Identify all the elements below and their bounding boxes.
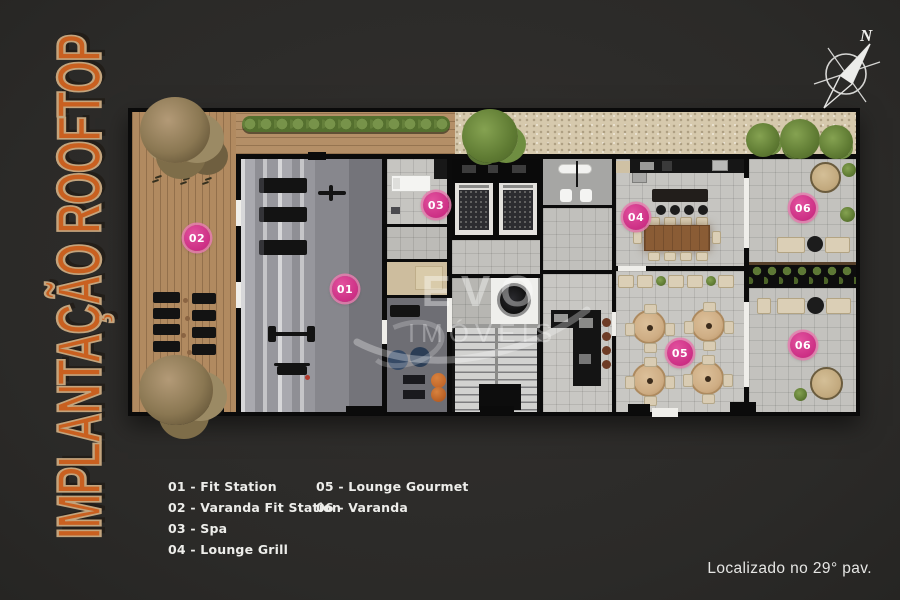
service-hall xyxy=(543,208,612,270)
toilet xyxy=(580,189,592,202)
bathroom-divider xyxy=(576,161,578,187)
exercise-mat xyxy=(403,375,425,384)
armchair xyxy=(668,275,684,288)
sun-lounger xyxy=(153,292,180,303)
treadmill xyxy=(259,207,307,222)
legend-item-lounge-grill: 04 - Lounge Grill xyxy=(168,543,316,557)
sofa xyxy=(826,298,851,314)
marker-05-lounge-gourmet: 05 xyxy=(667,340,693,366)
potted-plant xyxy=(794,388,807,401)
spa-tub xyxy=(497,283,531,317)
massage-mat xyxy=(415,266,443,290)
sun-lounger xyxy=(153,308,180,319)
elevator-cab xyxy=(455,183,493,235)
legend-item-lounge-gourmet: 05 - Lounge Gourmet xyxy=(316,480,469,494)
bar-stool xyxy=(698,205,708,215)
support-kitchen xyxy=(543,274,614,412)
sofa xyxy=(777,237,805,253)
coffee-table xyxy=(807,236,823,252)
green-roof-hedge xyxy=(242,116,450,132)
marker-label: 03 xyxy=(428,199,444,212)
dining-table xyxy=(644,225,710,251)
chair xyxy=(625,376,635,389)
round-table xyxy=(632,310,666,344)
marker-label: 06 xyxy=(795,339,811,352)
chair xyxy=(644,304,657,314)
armchair xyxy=(718,275,734,288)
chair xyxy=(644,343,657,353)
elevator-vent xyxy=(512,165,526,173)
chair xyxy=(702,394,715,404)
compass-icon: N xyxy=(806,24,894,112)
centerpiece xyxy=(647,378,653,384)
sun-lounger xyxy=(192,327,216,338)
bar-stool xyxy=(684,205,694,215)
stool xyxy=(602,346,611,355)
pouf-orange xyxy=(431,387,446,402)
round-table xyxy=(691,308,725,342)
elliptical-machine xyxy=(329,185,333,201)
grill xyxy=(662,161,672,171)
side-table xyxy=(185,316,190,321)
bush xyxy=(462,109,518,163)
elevator-car xyxy=(459,190,489,230)
sun-lounger xyxy=(192,310,216,321)
bush xyxy=(746,123,780,157)
massage-bed-pillow xyxy=(393,178,400,189)
chair xyxy=(703,302,716,312)
chair xyxy=(702,355,715,365)
dining-chair xyxy=(680,252,692,261)
elevator-vent xyxy=(462,165,476,173)
staircase xyxy=(452,328,540,412)
stool xyxy=(602,360,611,369)
spa-counter xyxy=(434,159,447,179)
stair-rail xyxy=(495,328,498,386)
chair xyxy=(684,321,694,334)
marker-02-varanda-fit-station: 02 xyxy=(184,225,210,251)
marker-04-lounge-grill: 04 xyxy=(623,204,649,230)
armchair xyxy=(618,275,634,288)
chair xyxy=(665,376,675,389)
armchair xyxy=(637,275,653,288)
marker-label: 05 xyxy=(672,347,688,360)
side-counter xyxy=(616,161,630,173)
armchair xyxy=(757,298,771,314)
side-table xyxy=(181,333,186,338)
sun-lounger xyxy=(192,344,216,355)
sofa xyxy=(777,298,805,314)
treadmill xyxy=(259,240,307,255)
bathrooms xyxy=(543,159,612,205)
centerpiece xyxy=(705,376,711,382)
chair xyxy=(683,374,693,387)
pouf-orange xyxy=(431,373,446,388)
marker-label: 06 xyxy=(795,202,811,215)
bush xyxy=(819,125,853,159)
marker-label: 02 xyxy=(189,232,205,245)
dining-chair xyxy=(648,252,660,261)
daybed xyxy=(810,367,843,400)
floor-plan: 01 02 03 04 05 06 06 xyxy=(128,108,860,416)
chair xyxy=(644,357,657,367)
kitchen-sink xyxy=(554,314,568,322)
gym-accessory xyxy=(305,375,310,380)
sun-lounger xyxy=(192,293,216,304)
elevator-door xyxy=(503,185,533,188)
daybed xyxy=(810,162,841,193)
centerpiece xyxy=(647,325,653,331)
chair xyxy=(625,323,635,336)
legend: 01 - Fit Station 02 - Varanda Fit Statio… xyxy=(168,480,469,564)
marker-06-varanda-lower: 06 xyxy=(790,332,816,358)
bar-table xyxy=(652,189,708,202)
corridor xyxy=(452,278,491,324)
grill-counter xyxy=(630,159,744,173)
coffee-table xyxy=(807,297,824,314)
sun-lounger xyxy=(153,341,180,352)
spa-stool xyxy=(391,207,400,214)
tree xyxy=(140,97,210,163)
centerpiece xyxy=(706,323,712,329)
legend-column-2: 05 - Lounge Gourmet 06 - Varanda xyxy=(316,480,469,564)
counter-sink xyxy=(640,162,654,170)
room-fit-station xyxy=(241,159,382,412)
bar-stool xyxy=(656,205,666,215)
elevator-block xyxy=(452,159,540,240)
dining-chair xyxy=(712,231,721,244)
massage-bed xyxy=(391,175,431,192)
marker-06-varanda-upper: 06 xyxy=(790,195,816,221)
legend-item-varanda-fit-station: 02 - Varanda Fit Station xyxy=(168,501,316,515)
marker-03-spa: 03 xyxy=(423,192,449,218)
chair xyxy=(665,323,675,336)
chair xyxy=(724,321,734,334)
treadmill xyxy=(259,178,307,193)
elevator-hall xyxy=(452,240,540,274)
round-table xyxy=(690,361,724,395)
location-note: Localizado no 29° pav. xyxy=(707,560,872,578)
tree xyxy=(139,355,213,425)
planter-hedge xyxy=(749,262,856,288)
legend-item-fit-station: 01 - Fit Station xyxy=(168,480,316,494)
elevator-door xyxy=(459,185,489,188)
potted-plant xyxy=(656,276,666,286)
cable-machine-bar xyxy=(274,332,309,336)
bar-stool xyxy=(670,205,680,215)
compass-north-label: N xyxy=(859,26,873,45)
room-massage xyxy=(387,262,447,295)
bush xyxy=(780,119,820,159)
kitchen-counter xyxy=(551,310,573,328)
pouf xyxy=(410,347,430,367)
weight-rack xyxy=(390,305,420,317)
chair xyxy=(723,374,733,387)
marker-01-fit-station: 01 xyxy=(332,276,358,302)
dining-chair xyxy=(664,252,676,261)
potted-plant xyxy=(706,276,716,286)
elevator-car xyxy=(503,190,533,230)
pouf xyxy=(388,350,408,370)
stool xyxy=(602,332,611,341)
kitchen-sink xyxy=(579,354,591,364)
marker-label: 01 xyxy=(337,283,353,296)
marker-label: 04 xyxy=(628,211,644,224)
dining-chair xyxy=(633,231,642,244)
page: IMPLANTAÇÃO ROOFTOP N xyxy=(0,0,900,600)
sun-lounger xyxy=(153,324,180,335)
spa-hall xyxy=(387,224,447,262)
chair xyxy=(703,341,716,351)
kitchen-island xyxy=(573,310,601,386)
spa-tub-frame xyxy=(491,278,538,324)
potted-plant xyxy=(842,163,856,177)
cooktop xyxy=(579,318,593,328)
sofa xyxy=(825,237,850,253)
elevator-cab xyxy=(499,183,537,235)
exercise-mat xyxy=(403,390,425,399)
legend-column-1: 01 - Fit Station 02 - Varanda Fit Statio… xyxy=(168,480,316,564)
relax-area xyxy=(387,295,447,412)
page-title: IMPLANTAÇÃO ROOFTOP xyxy=(44,35,115,539)
legend-item-spa: 03 - Spa xyxy=(168,522,316,536)
legend-item-varanda: 06 - Varanda xyxy=(316,501,469,515)
elevator-vent xyxy=(488,165,498,173)
stool xyxy=(602,318,611,327)
dining-chair xyxy=(696,252,708,261)
round-table xyxy=(632,363,666,397)
armchair xyxy=(687,275,703,288)
bench xyxy=(277,366,307,375)
side-table xyxy=(183,298,188,303)
grill-appliance xyxy=(712,160,728,171)
potted-plant xyxy=(840,207,855,222)
side-table xyxy=(187,350,192,355)
double-sink xyxy=(558,164,592,174)
toilet xyxy=(560,189,572,202)
